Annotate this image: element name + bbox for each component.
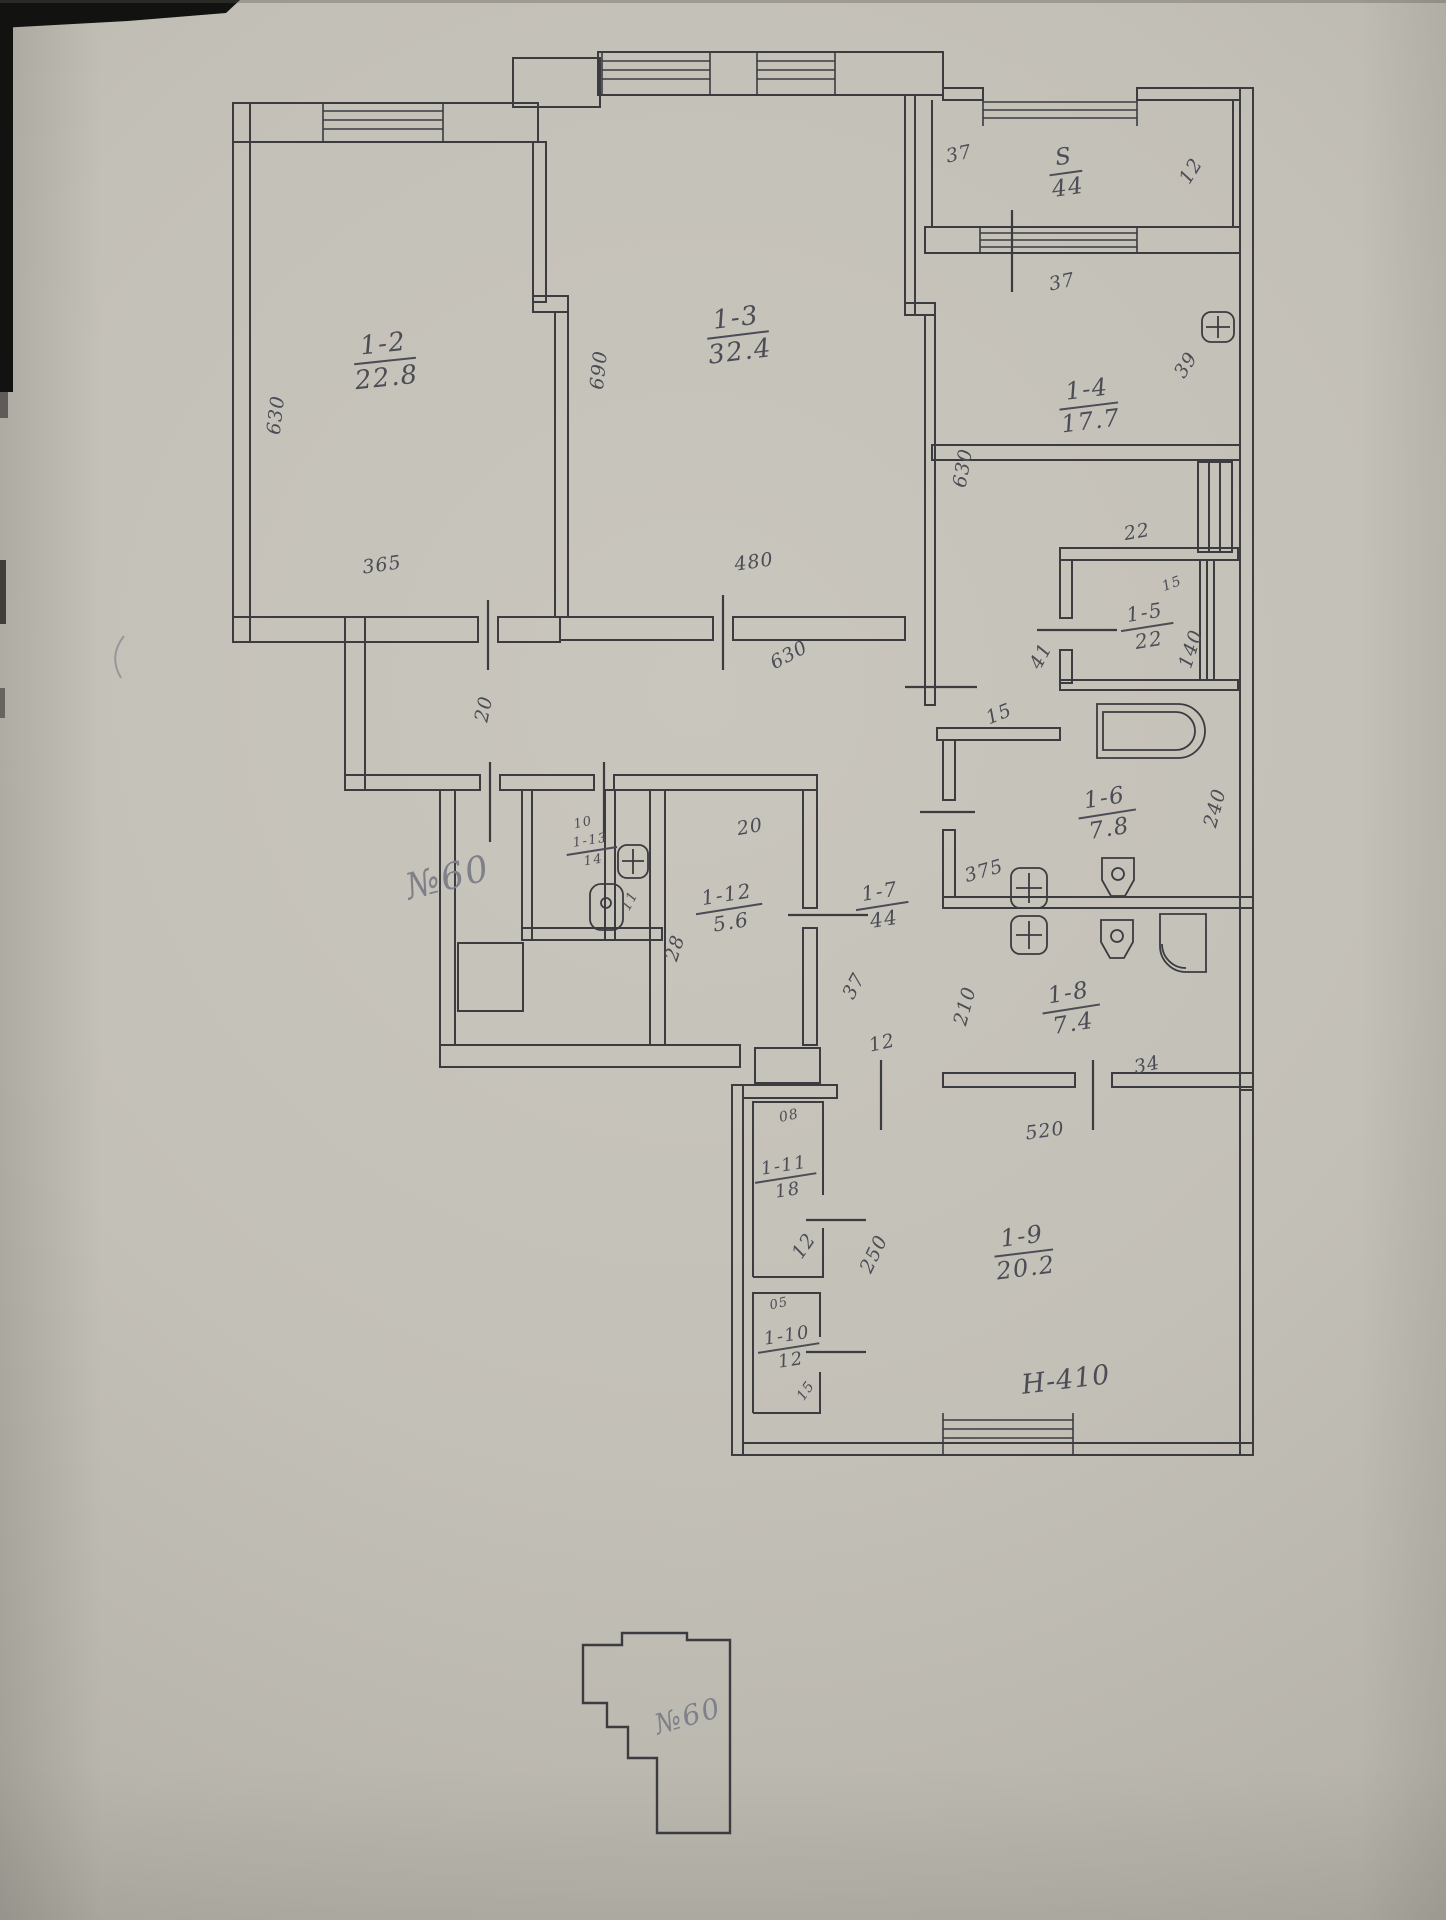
- dimension-label-37-26: 37: [838, 969, 870, 1002]
- room-area: 5.6: [711, 907, 751, 936]
- dimension-label-520-24: 520: [1024, 1117, 1066, 1144]
- scanned-floor-plan: 1-222.81-332.41-417.7S441-5221-67.81-744…: [0, 0, 1446, 1920]
- room-area: 7.4: [1051, 1007, 1096, 1040]
- dimension-label-22-10: 22: [1122, 519, 1152, 545]
- dimension-label-480-3: 480: [733, 548, 775, 575]
- dimension-label-250-31: 250: [856, 1232, 893, 1277]
- room-number: 1-7: [852, 877, 908, 911]
- dimension-label-15-14: 15: [983, 699, 1016, 729]
- room-number: 1-5: [1117, 598, 1173, 632]
- dimension-label-140-12: 140: [1174, 627, 1207, 671]
- room-area: 32.4: [706, 332, 773, 370]
- room-label-1-3: 1-332.4: [703, 300, 774, 369]
- dimension-label-41-13: 41: [1025, 639, 1057, 672]
- dimension-label-15-30: 15: [794, 1378, 818, 1403]
- dimension-label-37-8: 37: [1047, 269, 1077, 296]
- dimension-label-365-1: 365: [361, 551, 403, 578]
- room-area: 12: [776, 1347, 805, 1372]
- room-label-1-8: 1-87.4: [1038, 977, 1104, 1041]
- dimension-label-10-16: 10: [572, 814, 593, 833]
- room-label-1-13: 1-1314: [564, 830, 620, 872]
- room-label-1-5: 1-522: [1117, 598, 1177, 655]
- dimension-label-690-2: 690: [586, 349, 612, 390]
- room-area: 20.2: [995, 1250, 1057, 1285]
- room-label-1-2: 1-222.8: [350, 327, 420, 395]
- dimension-label-630-5: 630: [949, 447, 977, 489]
- dimension-label-37-6: 37: [944, 141, 974, 168]
- dimension-label-375-20: 375: [962, 855, 1006, 887]
- room-area: 44: [1050, 172, 1086, 203]
- dimension-label-11-17: 11: [618, 888, 641, 913]
- dimension-label-28-19: 28: [660, 932, 689, 964]
- dimension-label-210-22: 210: [949, 984, 980, 1028]
- dimension-label-12-28: 12: [787, 1229, 820, 1263]
- apartment-number-annotation-0: №60: [401, 848, 494, 909]
- dimension-label-630-0: 630: [263, 394, 290, 436]
- room-area: 22: [1133, 625, 1165, 653]
- dimension-label-H-410-32: H-410: [1020, 1359, 1112, 1401]
- apartment-number-annotation-1: №60: [651, 1691, 726, 1741]
- room-area: 44: [868, 904, 900, 932]
- room-label-1-11: 1-1118: [752, 1151, 821, 1205]
- dimension-label-05-29: 05: [768, 1295, 789, 1314]
- dimension-label-34-23: 34: [1132, 1052, 1162, 1079]
- room-area: 14: [582, 850, 604, 869]
- room-area: 17.7: [1060, 403, 1122, 438]
- room-area: 22.8: [353, 359, 420, 396]
- room-label-1-12: 1-125.6: [692, 879, 766, 938]
- room-label-1-7: 1-744: [852, 877, 912, 934]
- room-label-1-4: 1-417.7: [1056, 374, 1122, 439]
- dimension-label-20-15: 20: [471, 694, 498, 724]
- room-label-1-6: 1-67.8: [1074, 782, 1140, 846]
- room-area: 18: [773, 1177, 802, 1202]
- dimension-label-08-27: 08: [778, 1106, 801, 1126]
- room-label-S: S44: [1046, 143, 1087, 203]
- dimension-label-630-4: 630: [767, 636, 812, 674]
- room-label-1-10: 1-1012: [755, 1321, 824, 1375]
- handwritten-labels-layer: 1-222.81-332.41-417.7S441-5221-67.81-744…: [0, 0, 1446, 1920]
- dimension-label-12-25: 12: [867, 1030, 897, 1057]
- dimension-label-20-18: 20: [735, 814, 765, 840]
- dimension-label-240-21: 240: [1199, 786, 1230, 830]
- dimension-label-39-9: 39: [1170, 348, 1203, 382]
- room-area: 7.8: [1087, 812, 1132, 845]
- dimension-label-15-11: 15: [1160, 573, 1184, 595]
- dimension-label-12-7: 12: [1175, 154, 1208, 188]
- room-label-1-9: 1-920.2: [991, 1221, 1057, 1286]
